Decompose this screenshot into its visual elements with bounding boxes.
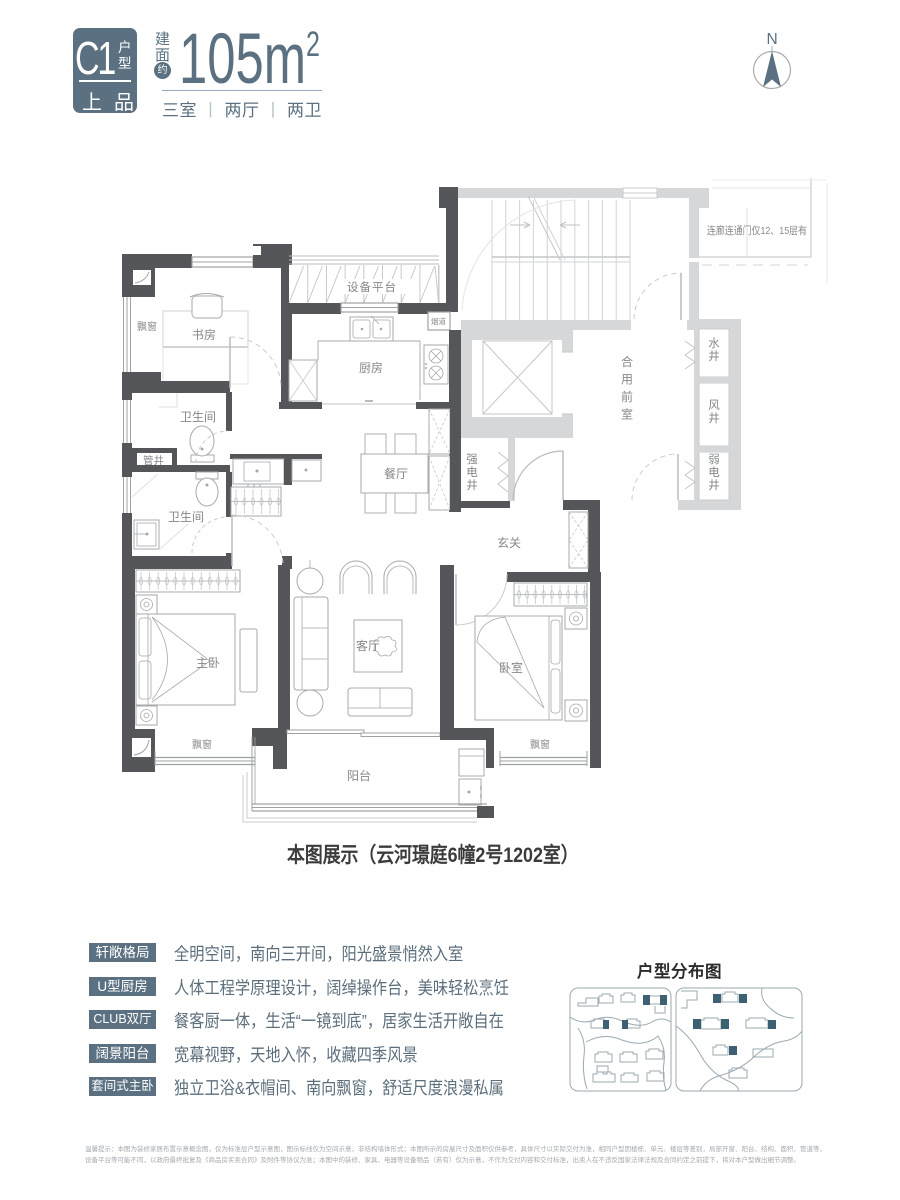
svg-text:连廊连通门仅12、15层有: 连廊连通门仅12、15层有 — [707, 224, 807, 237]
svg-text:弱: 弱 — [708, 453, 720, 466]
svg-text:飘窗: 飘窗 — [137, 320, 157, 333]
svg-text:井: 井 — [466, 478, 478, 492]
svg-text:客厅: 客厅 — [356, 638, 380, 653]
svg-text:主卧: 主卧 — [196, 656, 220, 670]
svg-text:用: 用 — [621, 373, 633, 387]
svg-text:前: 前 — [621, 389, 633, 404]
svg-text:书房: 书房 — [192, 327, 216, 342]
svg-text:设备平台: 设备平台 — [347, 280, 397, 294]
svg-text:卫生间: 卫生间 — [180, 410, 216, 424]
svg-text:飘窗: 飘窗 — [530, 738, 550, 751]
svg-text:玄关: 玄关 — [497, 535, 521, 550]
svg-text:井: 井 — [708, 478, 720, 492]
svg-text:电: 电 — [708, 466, 720, 479]
svg-text:井: 井 — [708, 411, 720, 425]
svg-text:阳台: 阳台 — [347, 768, 371, 783]
svg-text:合: 合 — [621, 354, 633, 369]
svg-text:室: 室 — [621, 407, 633, 422]
svg-text:飘窗: 飘窗 — [192, 738, 212, 751]
svg-text:风: 风 — [708, 399, 720, 412]
svg-text:水: 水 — [708, 337, 720, 350]
svg-text:烟道: 烟道 — [431, 316, 446, 326]
svg-text:厨房: 厨房 — [359, 360, 383, 375]
svg-text:井: 井 — [708, 349, 720, 363]
svg-text:电: 电 — [466, 466, 478, 479]
svg-text:强: 强 — [466, 454, 478, 466]
svg-text:卧室: 卧室 — [499, 660, 523, 675]
svg-text:餐厅: 餐厅 — [384, 466, 408, 481]
svg-text:卫生间: 卫生间 — [168, 510, 204, 524]
